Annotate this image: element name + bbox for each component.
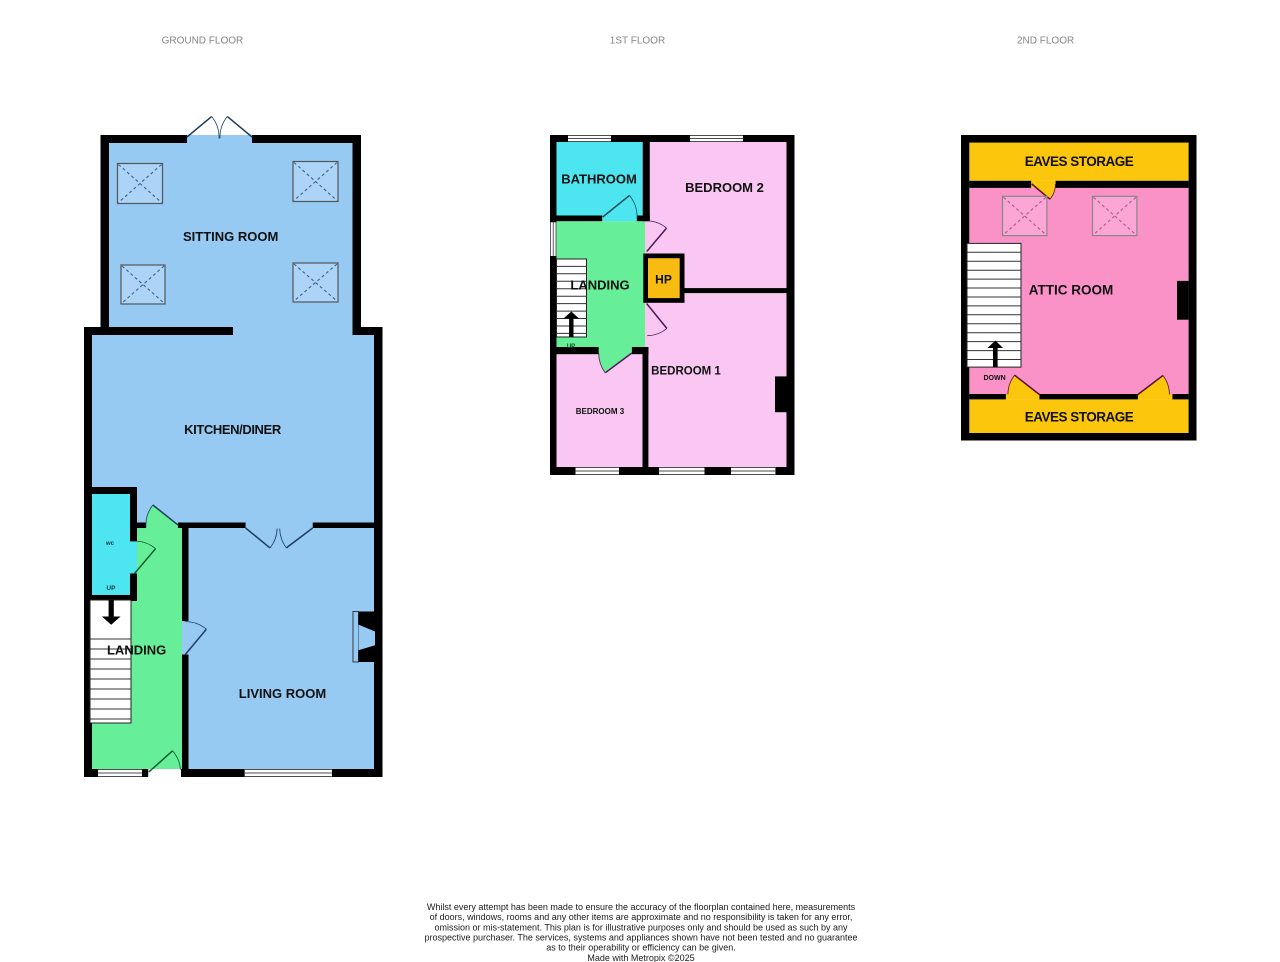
svg-text:GROUND FLOOR: GROUND FLOOR [162, 36, 244, 47]
svg-text:SITTING ROOM: SITTING ROOM [183, 229, 278, 244]
svg-text:LANDING: LANDING [570, 278, 629, 293]
svg-text:BATHROOM: BATHROOM [561, 172, 637, 187]
svg-text:of doors, windows, rooms and a: of doors, windows, rooms and any other i… [430, 912, 853, 922]
svg-text:wc: wc [105, 541, 115, 547]
svg-text:UP: UP [567, 344, 575, 350]
svg-text:HP: HP [655, 273, 672, 287]
svg-text:KITCHEN/DINER: KITCHEN/DINER [184, 422, 282, 437]
svg-text:omission or mis-statement. Thi: omission or mis-statement. This plan is … [434, 922, 848, 932]
svg-text:as to their operability or eff: as to their operability or efficiency ca… [546, 943, 735, 953]
svg-text:Whilst every attempt has been: Whilst every attempt has been made to en… [427, 902, 856, 912]
svg-text:BEDROOM 3: BEDROOM 3 [576, 407, 625, 416]
svg-text:EAVES STORAGE: EAVES STORAGE [1025, 410, 1134, 425]
svg-text:prospective purchaser. The ser: prospective purchaser. The services, sys… [424, 932, 857, 942]
svg-text:BEDROOM 1: BEDROOM 1 [651, 366, 721, 378]
svg-text:ATTIC ROOM: ATTIC ROOM [1029, 283, 1114, 298]
svg-text:LANDING: LANDING [107, 643, 166, 658]
svg-text:DOWN: DOWN [984, 375, 1006, 382]
svg-text:LIVING ROOM: LIVING ROOM [239, 686, 326, 701]
svg-text:Made with Metropix ©2025: Made with Metropix ©2025 [587, 953, 694, 962]
svg-text:2ND FLOOR: 2ND FLOOR [1017, 36, 1074, 47]
svg-text:EAVES STORAGE: EAVES STORAGE [1025, 154, 1134, 169]
svg-text:UP: UP [106, 585, 116, 592]
svg-text:BEDROOM 2: BEDROOM 2 [685, 180, 764, 195]
svg-text:1ST FLOOR: 1ST FLOOR [610, 36, 665, 47]
